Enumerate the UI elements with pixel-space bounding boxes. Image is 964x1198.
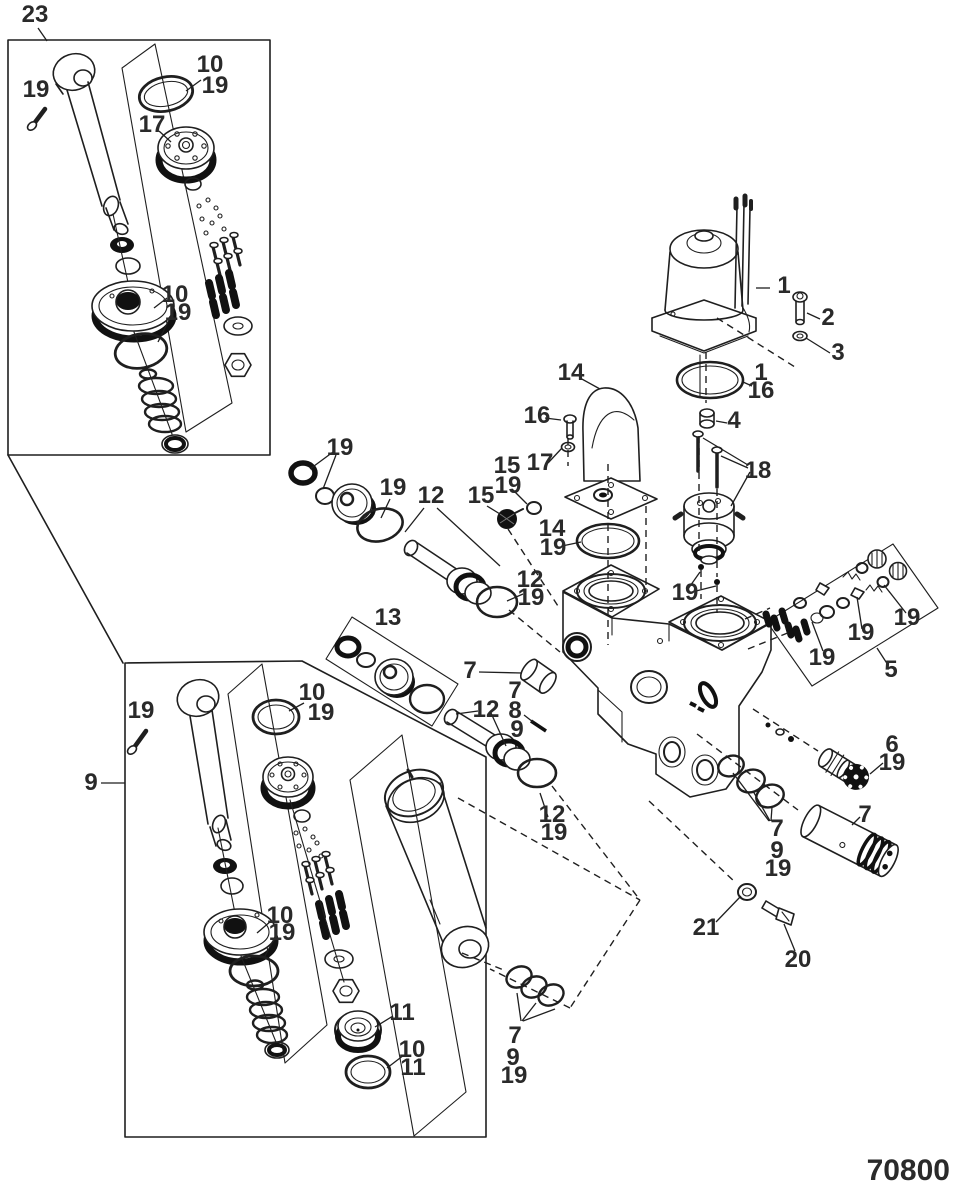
callout-1-30: 1 <box>777 272 790 299</box>
piston-head <box>263 757 313 822</box>
callout-7-44: 7 <box>858 801 871 828</box>
callout-7-50: 7 <box>463 657 476 684</box>
manifold-body <box>563 565 771 797</box>
pump-assembly-18 <box>675 431 743 585</box>
callout-16-26: 16 <box>524 402 551 429</box>
coupler-4 <box>700 409 714 428</box>
dowel-pin-19 <box>698 564 704 570</box>
callout-19-6: 19 <box>165 299 192 326</box>
callout-16-34: 16 <box>748 377 775 404</box>
callout-14-27: 14 <box>558 359 585 386</box>
o-ring-10-19 <box>253 700 299 734</box>
callout-12-18: 12 <box>418 482 445 509</box>
filter-15 <box>497 509 523 529</box>
callout-2-31: 2 <box>821 304 834 331</box>
callout-19-17: 19 <box>380 474 407 501</box>
callout-19-1: 19 <box>23 76 50 103</box>
piston-rod <box>172 674 243 894</box>
inner-guide-parallelogram <box>122 44 232 432</box>
bolt-20 <box>762 901 794 925</box>
manual-release-valve-6 <box>766 723 874 795</box>
callout-3-32: 3 <box>831 339 844 366</box>
seal-group-13 <box>326 617 458 726</box>
callout-21-48: 21 <box>693 914 720 941</box>
bolt-19 <box>126 731 146 756</box>
bushing-7 <box>518 657 560 696</box>
screw-16 <box>564 415 576 439</box>
callout-19-10: 19 <box>308 699 335 726</box>
callout-19-56: 19 <box>541 819 568 846</box>
check-balls <box>294 827 323 858</box>
check-valve-sleeves <box>209 273 236 315</box>
stack-centerline <box>290 800 344 982</box>
cylinder-end-cap-7 <box>797 802 902 879</box>
washer-and-nut <box>224 317 252 376</box>
box-connector-line <box>8 455 123 663</box>
callout-17-25: 17 <box>527 449 554 476</box>
diagram-canvas: 2319101917101919910191019111011191912121… <box>0 0 964 1198</box>
callout-4-35: 4 <box>727 407 741 434</box>
callout-23-0: 23 <box>22 1 49 28</box>
callout-19-38: 19 <box>809 644 836 671</box>
callout-19-59: 19 <box>501 1062 528 1089</box>
callout-5-41: 5 <box>884 656 897 683</box>
drawing-number: 70800 <box>867 1154 950 1187</box>
valve-pins <box>210 233 242 276</box>
o-ring-1-16 <box>677 362 743 398</box>
reservoir-cover-14 <box>565 388 657 519</box>
cylinder-tube <box>378 761 494 974</box>
washer-3 <box>793 332 807 341</box>
trim-cylinder-detail-box-9 <box>125 661 494 1137</box>
callout-12-54: 12 <box>473 696 500 723</box>
pin-8 <box>531 721 546 731</box>
callout-9-8: 9 <box>84 769 97 796</box>
o-ring-12-19 <box>518 759 556 787</box>
callout-15-24: 15 <box>468 482 495 509</box>
callout-19-3: 19 <box>202 72 229 99</box>
spring <box>247 981 289 1059</box>
washer-21 <box>738 884 756 900</box>
pump-motor-1 <box>652 196 756 398</box>
bolt-2 <box>793 292 807 325</box>
callout-19-7: 19 <box>128 697 155 724</box>
callout-19-37: 19 <box>672 579 699 606</box>
callout-19-47: 19 <box>765 855 792 882</box>
callout-11-15: 11 <box>400 1054 425 1081</box>
exploded-parts-diagram: 2319101917101919910191019111011191912121… <box>0 0 964 1198</box>
memory-piston-10-19 <box>204 828 278 1042</box>
scraper-cap-11 <box>335 1011 381 1050</box>
bolt-19 <box>26 109 45 132</box>
callout-19-40: 19 <box>894 604 921 631</box>
piston-rod-12-upper <box>402 538 517 617</box>
check-valve-sleeves <box>319 894 346 936</box>
callout-19-16: 19 <box>327 434 354 461</box>
piston-rod <box>48 48 129 236</box>
callout-9-53: 9 <box>510 716 523 743</box>
callout-19-43: 19 <box>879 749 906 776</box>
callout-19-12: 19 <box>269 919 296 946</box>
callout-19-20: 19 <box>518 584 545 611</box>
callout-20-49: 20 <box>785 946 812 973</box>
callout-11-13: 11 <box>389 999 414 1026</box>
dowel-pin-19 <box>714 579 720 585</box>
callout-13-21: 13 <box>375 604 402 631</box>
callout-19-29: 19 <box>540 534 567 561</box>
piston-head-17 <box>158 127 214 190</box>
o-ring-10-11 <box>346 1056 390 1088</box>
valve-row-upper <box>766 550 886 628</box>
ring-15-19 <box>527 502 541 514</box>
callout-17-4: 17 <box>139 111 166 138</box>
callout-18-36: 18 <box>745 457 772 484</box>
callout-19-39: 19 <box>848 619 875 646</box>
callout-19-23: 19 <box>495 472 522 499</box>
check-balls <box>197 198 226 235</box>
